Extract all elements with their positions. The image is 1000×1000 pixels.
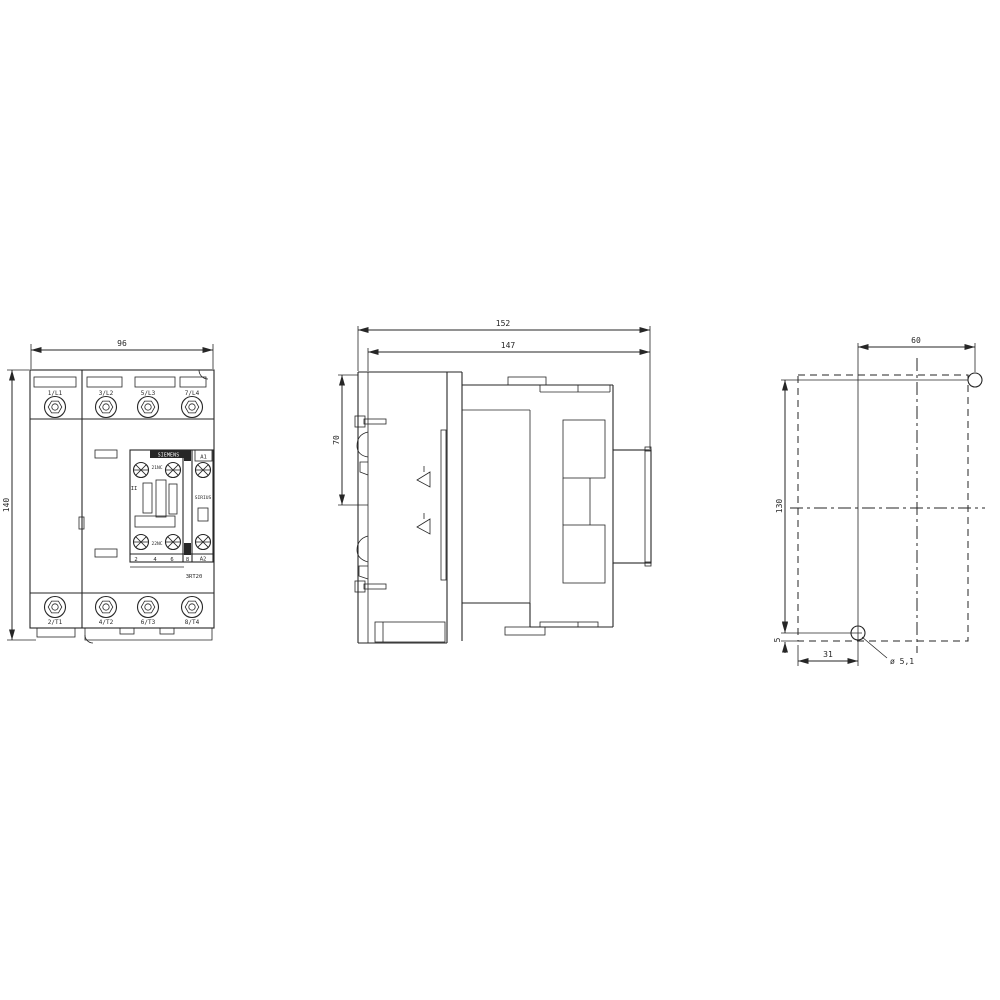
mounting-view: 60 130 5 31 ø 5,1 [773,336,985,666]
front-width-dimension: 96 [31,339,213,369]
pole-mark: II [131,486,138,492]
side-depth-label: 147 [501,341,516,350]
leader-line [862,637,887,658]
side-clip-dimension: 70 [332,375,368,505]
aux-screw [134,463,149,478]
coil-terminal-a1: A1 [200,455,207,461]
contactor-dimension-drawing: 1/L1 3/L2 5/L3 7/L4 2/T1 4/T2 6/T3 8/T4 [0,0,1000,1000]
side-clip-dim-label: 70 [332,435,341,445]
terminal-label-4T2: 4/T2 [99,619,114,626]
strip-number: 6 [170,557,173,563]
strip-number: 8 [186,557,189,563]
edge-offset-dimension: 5 [773,621,785,653]
hole-offset-h-dimension: 31 [798,650,858,661]
series-label: SIRIUS [195,495,212,501]
coil-screw [196,535,211,550]
terminal-label-1L1: 1/L1 [48,390,63,397]
brand-label: SIEMENS [158,453,180,459]
front-bottom-terminal-screws [45,597,203,618]
front-top-terminal-screws [45,397,203,418]
strip-number: 2 [134,557,137,563]
din-clip-top [355,416,386,475]
hole-spacing-h-dimension: 60 [858,336,975,347]
terminal-label-6T3: 6/T3 [141,619,156,626]
vent-slot [95,450,117,458]
vent-slot [95,549,117,557]
aux-label-top: 21NC [151,465,162,471]
side-view: 152 147 70 [332,319,651,643]
terminal-label-2T1: 2/T1 [48,619,63,626]
coil-terminal-a2: A2 [200,557,207,563]
front-view: 1/L1 3/L2 5/L3 7/L4 2/T1 4/T2 6/T3 8/T4 [2,339,214,643]
front-height-dim-label: 140 [2,498,11,513]
coil-aux-module: SIEMENS 21NC 22NC II A1 SIRIUS A2 2 4 [130,450,213,580]
side-body [462,372,651,641]
front-feet [37,628,212,643]
type-label: 3RT20 [186,574,203,580]
edge-offset-label: 5 [773,637,782,642]
hole-offset-h-label: 31 [823,650,833,659]
aux-screw [166,463,181,478]
terminal-label-5L3: 5/L3 [141,390,156,397]
side-depth-overall-dimension: 152 [358,319,650,449]
front-terminal-covers [34,370,208,387]
din-clip-bottom [355,536,386,592]
terminal-label-3L2: 3/L2 [99,390,114,397]
side-depth-dimension: 147 [368,341,650,371]
mounting-hole-top [968,373,982,387]
hole-spacing-h-label: 60 [911,336,921,345]
terminal-label-8T4: 8/T4 [185,619,200,626]
hole-spacing-v-dimension: 130 [775,380,785,633]
aux-screw [134,535,149,550]
aux-label-bottom: 22NC [151,541,162,547]
front-height-dimension: 140 [2,370,36,640]
coil-screw [196,463,211,478]
hole-diameter-label: ø 5,1 [890,657,914,666]
rail-marker-triangles [417,466,430,534]
front-width-dim-label: 96 [117,339,127,348]
hole-spacing-v-label: 130 [775,499,784,514]
side-depth-overall-label: 152 [496,319,511,328]
terminal-label-7L4: 7/L4 [185,390,200,397]
module-black-mark [184,543,191,555]
aux-screw [166,535,181,550]
dimension-drawing-page: 1/L1 3/L2 5/L3 7/L4 2/T1 4/T2 6/T3 8/T4 [0,0,1000,1000]
